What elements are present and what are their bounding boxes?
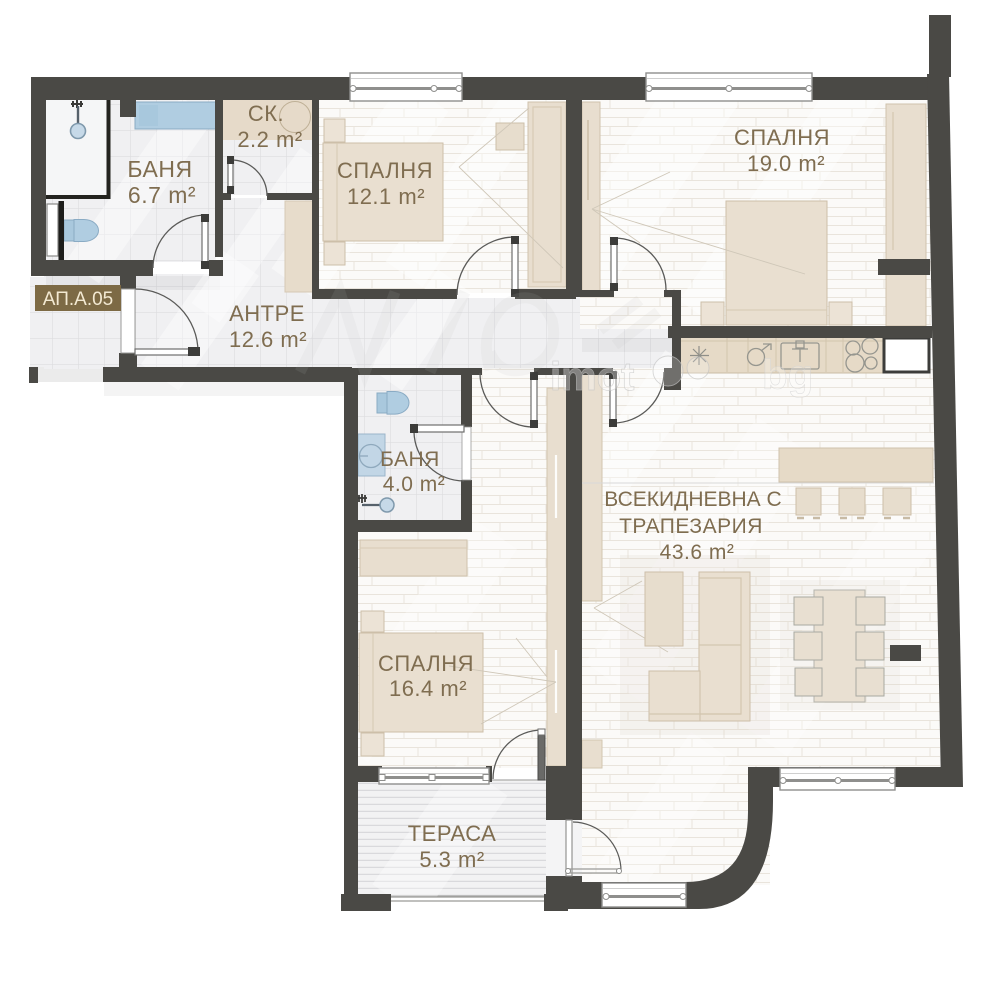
svg-text:СПАЛНЯ: СПАЛНЯ (378, 651, 474, 676)
svg-text:БАНЯ: БАНЯ (380, 448, 440, 471)
svg-text:СПАЛНЯ: СПАЛНЯ (734, 125, 830, 150)
svg-text:imot: imot (550, 355, 634, 399)
svg-text:АП.А.05: АП.А.05 (43, 289, 113, 310)
svg-text:16.4 m²: 16.4 m² (389, 676, 467, 701)
svg-text:5.3 m²: 5.3 m² (419, 847, 484, 872)
svg-text:ТЕРАСА: ТЕРАСА (408, 821, 497, 846)
svg-text:6.7 m²: 6.7 m² (128, 182, 196, 208)
svg-text:ВСЕКИДНЕВНА С: ВСЕКИДНЕВНА С (604, 488, 781, 511)
svg-text:2.2 m²: 2.2 m² (237, 127, 302, 152)
svg-text:СК.: СК. (248, 101, 284, 126)
svg-text:ТРАПЕЗАРИЯ: ТРАПЕЗАРИЯ (619, 515, 763, 538)
svg-text:19.0 m²: 19.0 m² (747, 151, 825, 176)
svg-text:4.0 m²: 4.0 m² (383, 473, 446, 496)
svg-text:12.6 m²: 12.6 m² (229, 327, 307, 352)
svg-text:43.6 m²: 43.6 m² (660, 541, 735, 564)
svg-text:12.1 m²: 12.1 m² (347, 184, 425, 209)
svg-text:bg: bg (762, 351, 813, 398)
svg-text:БАНЯ: БАНЯ (127, 156, 192, 182)
svg-text:АНТРЕ: АНТРЕ (229, 301, 305, 326)
svg-text:СПАЛНЯ: СПАЛНЯ (337, 158, 433, 183)
